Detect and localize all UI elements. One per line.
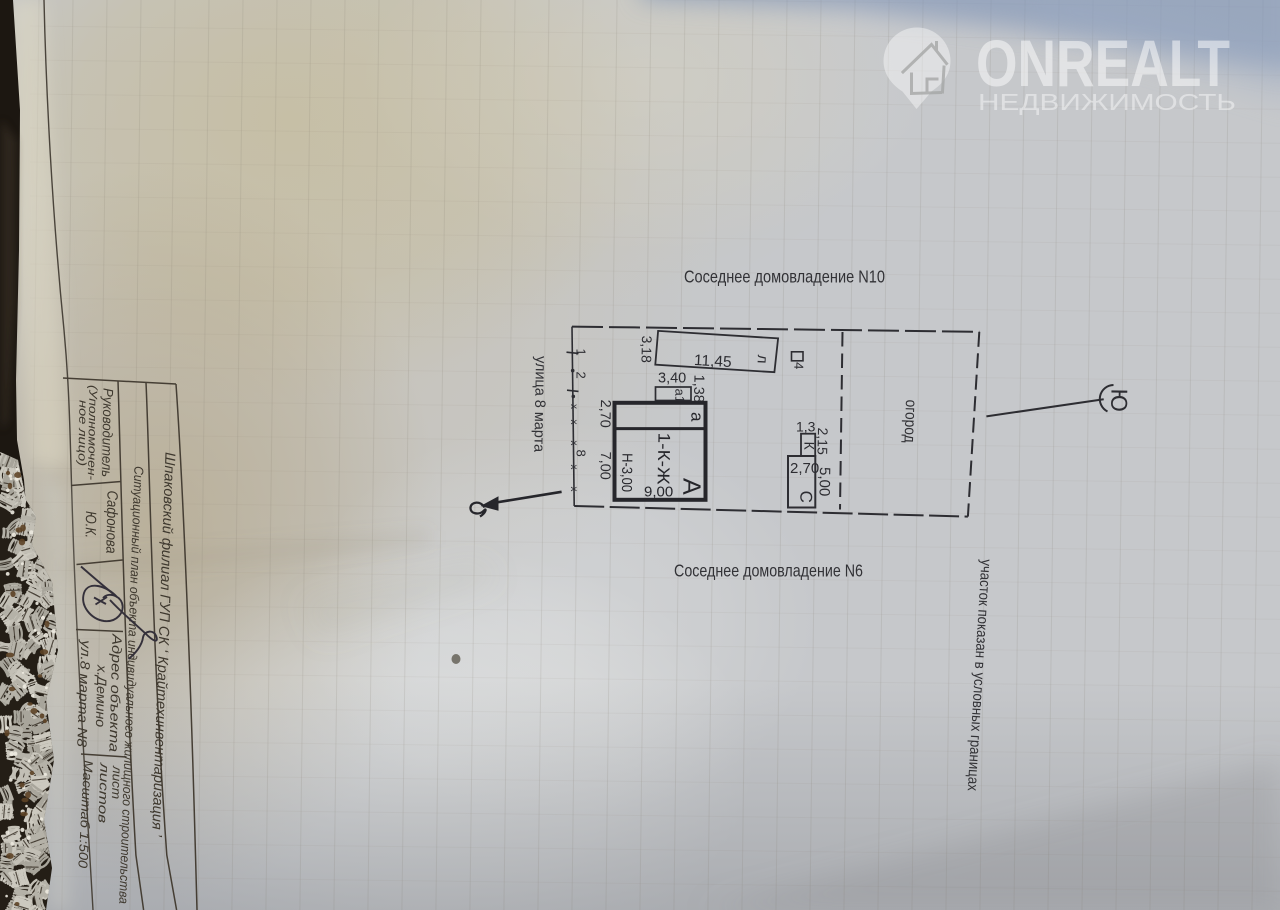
- svg-text:х.Демино: х.Демино: [93, 664, 110, 728]
- svg-text:Ю.К.: Ю.К.: [82, 511, 99, 538]
- svg-text:11,45: 11,45: [694, 352, 732, 371]
- svg-text:х: х: [568, 487, 579, 492]
- svg-text:л: л: [754, 354, 771, 364]
- svg-text:2: 2: [574, 372, 589, 379]
- svg-text:Н-3,00: Н-3,00: [618, 453, 635, 492]
- svg-text:НЕДВИЖИМОСТЬ: НЕДВИЖИМОСТЬ: [978, 89, 1236, 115]
- svg-text:ное лицо): ное лицо): [75, 400, 88, 466]
- svg-text:Ю: Ю: [1106, 388, 1132, 412]
- svg-text:4: 4: [791, 362, 806, 370]
- svg-text:Руководитель: Руководитель: [99, 388, 117, 477]
- svg-text:Соседнее домовладение N10: Соседнее домовладение N10: [684, 267, 885, 287]
- svg-text:2,70: 2,70: [597, 399, 613, 428]
- svg-text:3,40: 3,40: [658, 371, 686, 387]
- svg-text:х: х: [568, 441, 579, 446]
- svg-text:9,00: 9,00: [644, 484, 673, 501]
- svg-text:листов: листов: [95, 762, 111, 824]
- svg-text:А: А: [677, 478, 705, 495]
- svg-text:1: 1: [574, 349, 589, 356]
- svg-text:7,00: 7,00: [597, 451, 613, 480]
- svg-text:2,15: 2,15: [815, 427, 831, 455]
- svg-text:2,70: 2,70: [790, 460, 819, 477]
- svg-text:1-К-Ж: 1-К-Ж: [654, 432, 674, 485]
- svg-text:5,00: 5,00: [815, 467, 833, 496]
- svg-text:х: х: [568, 404, 579, 409]
- svg-text:Соседнее домовладение N6: Соседнее домовладение N6: [674, 561, 863, 581]
- svg-text:Сафонова: Сафонова: [102, 490, 120, 553]
- svg-text:1,38: 1,38: [690, 374, 706, 403]
- svg-text:огород: огород: [900, 399, 919, 443]
- svg-text:С: С: [796, 490, 815, 503]
- svg-text:3,18: 3,18: [639, 335, 655, 363]
- svg-text:х: х: [568, 465, 579, 470]
- svg-text:1,3: 1,3: [796, 419, 816, 435]
- svg-text:х: х: [568, 420, 579, 425]
- svg-text:8: 8: [574, 450, 589, 457]
- svg-text:улица 8 марта: улица 8 марта: [530, 356, 549, 453]
- svg-text:а: а: [687, 412, 706, 422]
